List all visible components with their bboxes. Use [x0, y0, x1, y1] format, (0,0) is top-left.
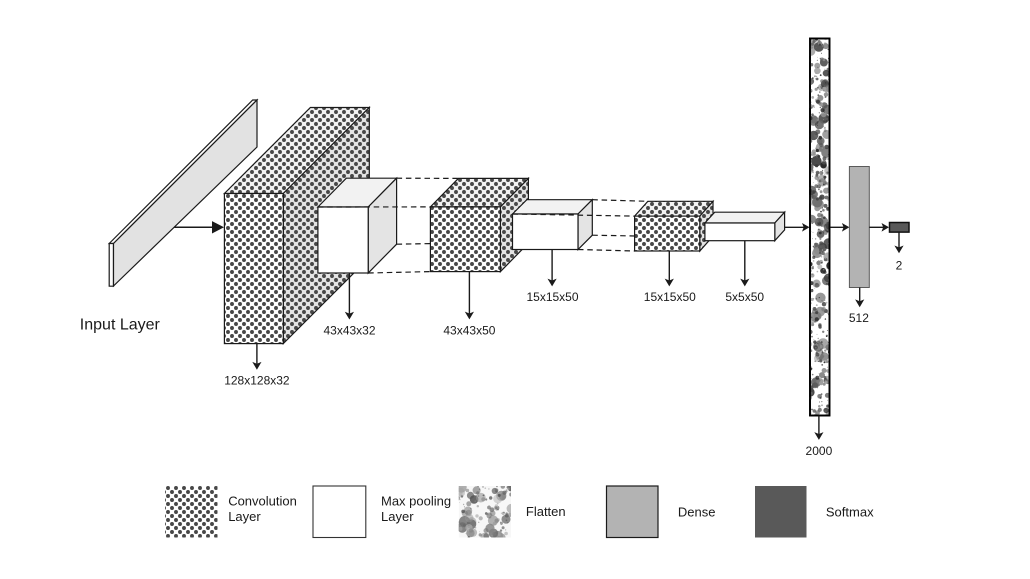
svg-text:Input Layer: Input Layer: [80, 316, 161, 333]
svg-text:15x15x50: 15x15x50: [644, 290, 696, 304]
svg-text:2000: 2000: [806, 444, 833, 458]
svg-text:Dense: Dense: [678, 505, 716, 520]
svg-text:Softmax: Softmax: [826, 505, 874, 520]
svg-text:43x43x32: 43x43x32: [323, 323, 375, 337]
svg-text:512: 512: [849, 311, 869, 325]
svg-text:Convolution: Convolution: [228, 494, 297, 509]
svg-text:Max pooling: Max pooling: [381, 494, 451, 509]
svg-text:15x15x50: 15x15x50: [526, 290, 578, 304]
svg-text:Layer: Layer: [381, 509, 414, 524]
svg-text:Layer: Layer: [228, 509, 261, 524]
svg-text:2: 2: [896, 258, 903, 272]
svg-text:5x5x50: 5x5x50: [725, 290, 764, 304]
svg-text:Flatten: Flatten: [526, 504, 566, 519]
svg-text:43x43x50: 43x43x50: [443, 324, 495, 338]
svg-text:128x128x32: 128x128x32: [224, 373, 290, 387]
